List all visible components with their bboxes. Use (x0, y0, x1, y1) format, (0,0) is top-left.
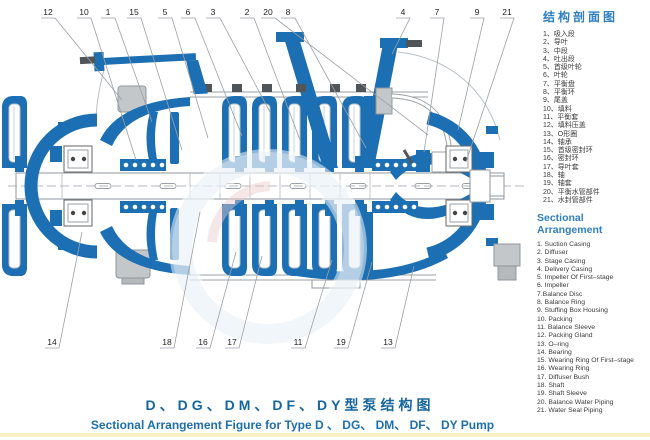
legend-item: 12. Packing Gland (537, 332, 649, 340)
callout-number: 8 (286, 7, 291, 17)
legend-item: 11. Balance Sleeve (537, 324, 649, 332)
legend-item: 5. Impeller Of First–stage (537, 274, 649, 282)
callout-number: 17 (227, 337, 237, 347)
legend-item: 3、中段 (543, 48, 647, 56)
callout-number: 20 (263, 7, 273, 17)
legend-item: 18. Shaft (537, 382, 649, 390)
legend-item: 19. Shaft Sleeve (537, 390, 649, 398)
legend-item: 14、轴承 (543, 139, 647, 147)
callout-number: 15 (129, 7, 139, 17)
tie-rod-nuts (202, 84, 366, 92)
legend-item: 17、导叶套 (543, 164, 647, 172)
legend-item: 4、吐出段 (543, 56, 647, 64)
legend-item: 13. O–ring (537, 341, 649, 349)
bottom-accent-strip (0, 433, 650, 437)
shaft-end (490, 176, 504, 196)
callout-line (458, 18, 484, 130)
legend-item: 16. Wearing Ring (537, 365, 649, 373)
callout-number: 21 (502, 7, 512, 17)
callout-number: 1 (106, 7, 111, 17)
legend-item: 21、水封管部件 (543, 197, 647, 205)
pump-cross-section-drawing: 121011556322084792114181617111913 (0, 0, 535, 392)
legend-item: 9. Stuffing Box Housing (537, 307, 649, 315)
balance-ring (364, 96, 373, 160)
legend-item: 2. Diffuser (537, 249, 649, 257)
legend-item: 12、填料压盖 (543, 122, 647, 130)
legend-item: 2、导叶 (543, 39, 647, 47)
legend-item: 4. Delivery Casing (537, 266, 649, 274)
callout-number: 14 (47, 337, 57, 347)
legend-item: 10. Packing (537, 316, 649, 324)
legend-item: 8. Balance Ring (537, 299, 649, 307)
legend-item: 6. Impeller (537, 282, 649, 290)
legend-item: 1. Suction Casing (537, 241, 649, 249)
caption-chinese: D、DG、DM、DF、DY型泵结构图 (60, 395, 520, 415)
callout-number: 18 (162, 337, 172, 347)
legend-chinese-items: 1、吸入段2、导叶3、中段4、吐出段5、首级叶轮6、叶轮7、平衡盘8、平衡环9、… (543, 31, 647, 205)
callout-number: 5 (163, 7, 168, 17)
legend-chinese-title: 结构剖面图 (543, 8, 647, 25)
legend-english-title: Sectional Arrangement (537, 212, 649, 236)
pump-figure-page: 121011556322084792114181617111913 结构剖面图 … (0, 0, 650, 440)
outer-casing-curve (96, 70, 104, 122)
callout-number: 2 (245, 7, 250, 17)
callout-number: 7 (435, 7, 440, 17)
legend-english: Sectional Arrangement 1. Suction Casing2… (537, 212, 649, 415)
legend-item: 7.Balance Disc (537, 291, 649, 299)
caption-english: Sectional Arrangement Figure for Type D … (20, 416, 565, 433)
callout-number: 9 (475, 7, 480, 17)
flange-bolt (406, 40, 422, 47)
right-lower-gland-block (494, 244, 520, 280)
legend-item: 21. Water Seal Piping (537, 407, 649, 415)
legend-item: 6、叶轮 (543, 72, 647, 80)
shaft-end-collar (470, 170, 490, 202)
callout-line (466, 18, 514, 162)
legend-item: 9、尾盖 (543, 97, 647, 105)
first-stage-impeller (170, 112, 179, 164)
callout-number: 4 (401, 7, 406, 17)
callout-number: 16 (198, 337, 208, 347)
callout-number: 3 (211, 7, 216, 17)
legend-item: 16、密封环 (543, 155, 647, 163)
callout-line (424, 18, 444, 152)
legend-item: 19、轴套 (543, 180, 647, 188)
callout-number: 13 (383, 337, 393, 347)
legend-item: 7、平衡盘 (543, 81, 647, 89)
legend-item: 15. Wearing Ring Of First–stage (537, 357, 649, 365)
callout-number: 10 (79, 7, 89, 17)
legend-item: 14. Bearing (537, 349, 649, 357)
callout-number: 19 (336, 337, 346, 347)
legend-english-items: 1. Suction Casing2. Diffuser3. Stage Cas… (537, 241, 649, 415)
legend-item: 3. Stage Casing (537, 258, 649, 266)
callout-line (381, 266, 414, 348)
callout-number: 6 (186, 7, 191, 17)
legend-item: 13、O形圈 (543, 131, 647, 139)
callout-line (392, 18, 410, 54)
legend-item: 10、填料 (543, 106, 647, 114)
callout-number: 11 (294, 337, 303, 347)
legend-item: 20、平衡水管部件 (543, 189, 647, 197)
callout-number: 12 (43, 7, 53, 17)
legend-item: 20. Balance Water Piping (537, 399, 649, 407)
legend-chinese: 结构剖面图 1、吸入段2、导叶3、中段4、吐出段5、首级叶轮6、叶轮7、平衡盘8… (543, 8, 647, 205)
legend-item: 17. Diffuser Bush (537, 374, 649, 382)
